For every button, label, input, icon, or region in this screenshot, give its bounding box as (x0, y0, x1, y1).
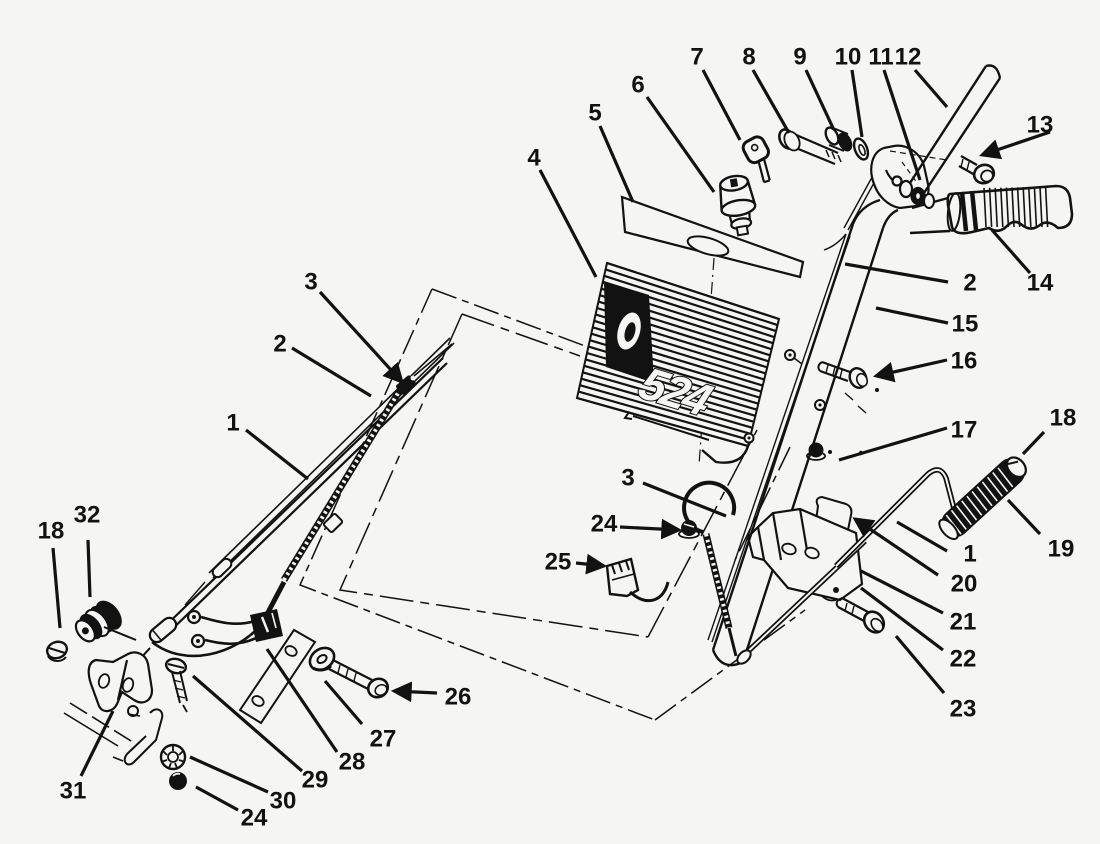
leader-line-15 (876, 308, 948, 323)
leader-line-26 (394, 691, 437, 693)
leader-line-7 (703, 70, 740, 140)
leader-line-31 (81, 711, 113, 776)
leader-line-12 (915, 70, 947, 107)
callout-label-5: 5 (588, 100, 601, 127)
bracket-31 (89, 652, 152, 716)
leader-line-19 (1008, 500, 1040, 534)
callout-label-7: 7 (690, 44, 703, 71)
bolt-16 (818, 362, 869, 390)
exploded-view-diagram: 524 (0, 0, 1100, 844)
callout-label-24-mid: 24 (591, 511, 618, 538)
ignition-switch (716, 173, 760, 237)
leader-line-16 (876, 360, 947, 376)
leader-line-3-left (320, 292, 402, 382)
leader-line-24-mid (620, 527, 679, 530)
leader-line-29 (193, 676, 302, 771)
leader-line-10 (852, 70, 862, 137)
key (741, 134, 782, 184)
callout-label-17: 17 (951, 417, 978, 444)
callout-label-10: 10 (835, 44, 862, 71)
leader-line-2-right (845, 264, 948, 282)
flange-nut-24-mid (679, 520, 699, 538)
callout-label-27: 27 (370, 726, 397, 753)
callout-label-2-left: 2 (273, 331, 286, 358)
knob-shaft (104, 627, 136, 640)
callout-label-2-right: 2 (963, 270, 976, 297)
hand-grip-right (946, 186, 1072, 233)
leader-line-17 (839, 428, 947, 460)
callout-label-26: 26 (445, 684, 472, 711)
flange-nut-30 (161, 745, 185, 769)
leader-line-1-left (246, 430, 308, 479)
callout-label-22: 22 (950, 646, 977, 673)
callout-label-8: 8 (742, 44, 755, 71)
connector-25 (607, 559, 668, 601)
leader-line-14 (992, 230, 1030, 273)
callout-label-12: 12 (895, 44, 922, 71)
crank-rod-right (836, 470, 958, 566)
leader-line-9 (806, 70, 833, 128)
console-top-surface (622, 197, 803, 277)
washer-10 (851, 137, 870, 162)
callout-label-18-right: 18 (1050, 405, 1077, 432)
screw-29 (165, 657, 188, 712)
callout-label-28: 28 (339, 749, 366, 776)
callout-label-1-right: 1 (963, 541, 976, 568)
nut-18-left (45, 639, 69, 661)
callout-label-15: 15 (952, 311, 979, 338)
console-panel: 524 (577, 197, 803, 465)
callout-label-29: 29 (302, 767, 329, 794)
leader-line-4 (540, 170, 596, 277)
knob-32 (71, 596, 127, 649)
callout-label-16: 16 (951, 348, 978, 375)
callout-label-24-bottom: 24 (241, 805, 268, 832)
callout-label-31: 31 (60, 778, 87, 805)
leader-line-2-left (292, 348, 371, 396)
callout-label-14: 14 (1027, 270, 1054, 297)
callout-label-30: 30 (270, 788, 297, 815)
callout-label-3-mid: 3 (621, 465, 634, 492)
callout-label-1-left: 1 (226, 410, 239, 437)
parts-diagram-page: 524 (0, 0, 1100, 844)
callout-label-21: 21 (950, 609, 977, 636)
callout-label-13: 13 (1027, 112, 1054, 139)
callout-label-3-left: 3 (304, 269, 317, 296)
callout-label-4: 4 (527, 145, 541, 172)
bolt-13 (959, 156, 997, 186)
callout-label-18-left: 18 (38, 518, 65, 545)
leader-line-20 (855, 519, 938, 575)
leader-line-25 (576, 563, 604, 566)
leader-line-30 (190, 757, 268, 792)
callout-label-9: 9 (793, 44, 806, 71)
leader-line-21 (861, 571, 943, 613)
nut-17 (807, 443, 863, 460)
callout-label-19: 19 (1048, 536, 1075, 563)
leader-line-27 (325, 681, 362, 724)
callout-label-25: 25 (545, 549, 572, 576)
callout-label-32: 32 (74, 502, 101, 529)
leader-line-18-right (1023, 432, 1044, 454)
callout-label-23: 23 (950, 696, 977, 723)
callout-label-11: 11 (868, 44, 893, 71)
lower-handle-bar (240, 630, 315, 723)
callout-label-6: 6 (631, 72, 644, 99)
cap-nut-24-bottom (169, 772, 187, 790)
crank-rod-left (133, 358, 447, 672)
leader-line-18-left (53, 548, 60, 628)
leader-line-6 (647, 97, 714, 192)
leader-line-8 (753, 70, 789, 133)
leader-line-24-bottom (196, 787, 238, 810)
cable-clamp-28 (250, 609, 283, 642)
leader-line-5 (600, 126, 633, 202)
leader-line-32 (88, 540, 90, 597)
callout-label-20: 20 (951, 571, 978, 598)
